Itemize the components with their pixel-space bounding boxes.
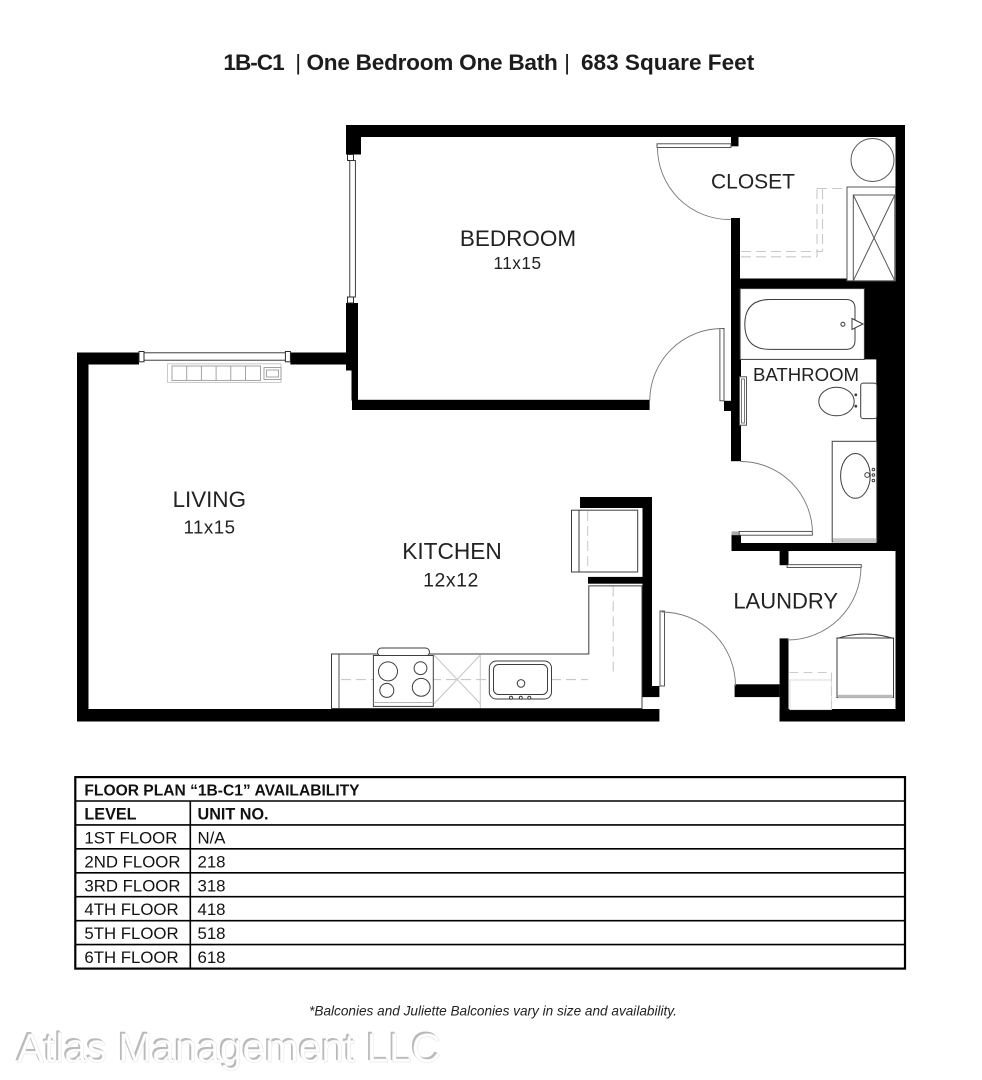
svg-text:518: 518 xyxy=(198,924,226,943)
svg-text:418: 418 xyxy=(198,900,226,919)
svg-text:LAUNDRY: LAUNDRY xyxy=(733,589,838,614)
svg-text:FLOOR PLAN “1B-C1” AVAILABILIT: FLOOR PLAN “1B-C1” AVAILABILITY xyxy=(84,782,360,799)
svg-text:BEDROOM: BEDROOM xyxy=(460,226,576,251)
svg-text:12x12: 12x12 xyxy=(423,569,479,591)
svg-text:2ND FLOOR: 2ND FLOOR xyxy=(84,852,180,871)
svg-text:11x15: 11x15 xyxy=(183,517,235,538)
svg-text:4TH FLOOR: 4TH FLOOR xyxy=(84,900,178,919)
svg-text:318: 318 xyxy=(198,876,226,895)
svg-text:LEVEL: LEVEL xyxy=(84,805,136,823)
svg-text:11x15: 11x15 xyxy=(493,253,541,273)
svg-text:UNIT NO.: UNIT NO. xyxy=(198,805,269,823)
svg-text:5TH FLOOR: 5TH FLOOR xyxy=(84,924,178,943)
svg-text:Atlas Management LLC: Atlas Management LLC xyxy=(17,1025,441,1071)
svg-text:618: 618 xyxy=(198,948,226,967)
svg-text:1ST FLOOR: 1ST FLOOR xyxy=(84,828,177,847)
svg-text:6TH FLOOR: 6TH FLOOR xyxy=(84,948,178,967)
svg-text:CLOSET: CLOSET xyxy=(711,171,795,194)
svg-text:LIVING: LIVING xyxy=(173,487,246,512)
svg-text:N/A: N/A xyxy=(198,828,227,847)
svg-text:218: 218 xyxy=(198,852,226,871)
svg-text:BATHROOM: BATHROOM xyxy=(753,364,859,385)
svg-text:*Balconies and Juliette Balcon: *Balconies and Juliette Balconies vary i… xyxy=(309,1004,677,1019)
svg-text:KITCHEN: KITCHEN xyxy=(402,538,502,564)
svg-text:3RD FLOOR: 3RD FLOOR xyxy=(84,876,180,895)
